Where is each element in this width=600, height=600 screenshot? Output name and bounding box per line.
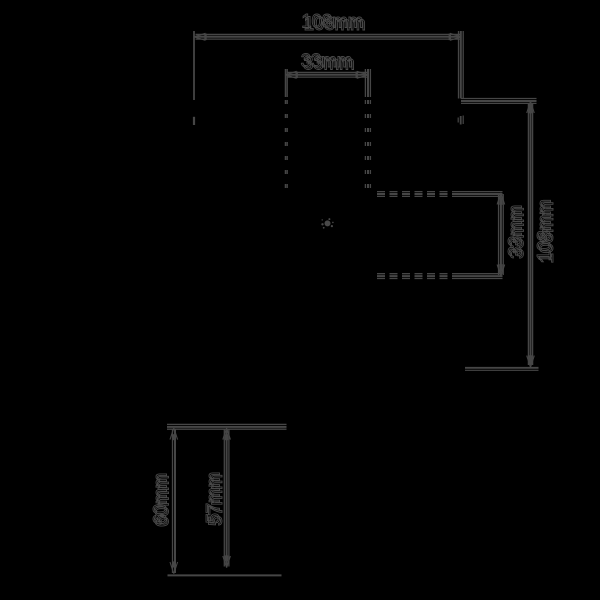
svg-text:33mm: 33mm [508, 207, 529, 259]
svg-text:33mm: 33mm [303, 53, 355, 74]
svg-text:108mm: 108mm [304, 14, 366, 35]
svg-text:57mm: 57mm [206, 474, 227, 526]
svg-text:60mm: 60mm [153, 475, 174, 527]
svg-text:108mm: 108mm [537, 202, 558, 264]
